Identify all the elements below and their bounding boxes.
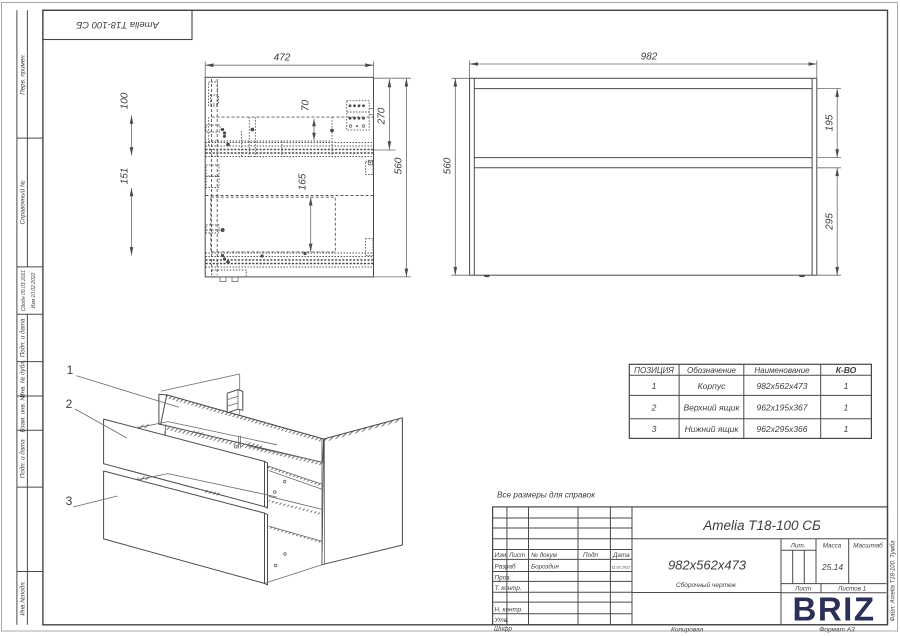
svg-text:Amelia Т18-100 СБ: Amelia Т18-100 СБ <box>702 518 821 533</box>
svg-text:25.14: 25.14 <box>821 562 844 572</box>
svg-text:Корпус: Корпус <box>698 381 726 391</box>
svg-text:Нижний ящик: Нижний ящик <box>685 424 740 434</box>
svg-text:Инв. № дубл.: Инв. № дубл. <box>20 360 27 398</box>
svg-text:Н. контр.: Н. контр. <box>495 607 523 614</box>
svg-text:962х195х367: 962х195х367 <box>756 403 807 413</box>
svg-text:Справочный №: Справочный № <box>20 180 27 224</box>
svg-text:BRIZ: BRIZ <box>793 591 876 628</box>
svg-text:1: 1 <box>652 381 657 391</box>
svg-text:100: 100 <box>120 92 131 109</box>
svg-text:560: 560 <box>394 157 405 174</box>
svg-text:Шифр: Шифр <box>494 626 513 633</box>
svg-text:Лист: Лист <box>508 552 525 559</box>
svg-text:195: 195 <box>825 114 836 131</box>
svg-text:151: 151 <box>120 168 131 185</box>
svg-text:Файл: Amelia Т18-100. Тумба: Файл: Amelia Т18-100. Тумба <box>890 540 897 622</box>
svg-text:Лит.: Лит. <box>790 543 806 550</box>
svg-text:1: 1 <box>844 424 849 434</box>
svg-text:270: 270 <box>377 107 388 125</box>
svg-text:982: 982 <box>641 51 658 62</box>
svg-text:Подп. и дата: Подп. и дата <box>20 318 27 357</box>
svg-text:11.02.2022: 11.02.2022 <box>612 566 632 570</box>
svg-text:Наименование: Наименование <box>754 366 810 375</box>
svg-text:№ докум: № докум <box>531 551 558 559</box>
svg-text:Все размеры для справок: Все размеры для справок <box>497 491 596 500</box>
svg-text:ПОЗИЦИЯ: ПОЗИЦИЯ <box>634 366 674 375</box>
svg-text:2: 2 <box>651 403 657 413</box>
svg-text:982х562х473: 982х562х473 <box>756 381 807 391</box>
svg-text:Подп: Подп <box>583 551 599 559</box>
svg-text:1: 1 <box>67 363 74 377</box>
svg-text:Обозначение: Обозначение <box>687 366 737 375</box>
svg-text:295: 295 <box>825 213 836 231</box>
svg-text:К-ВО: К-ВО <box>836 365 857 375</box>
svg-text:Верхний ящик: Верхний ящик <box>683 403 740 413</box>
svg-text:Изм 10.02.2022: Изм 10.02.2022 <box>31 272 37 308</box>
svg-text:Масштаб: Масштаб <box>853 542 883 550</box>
svg-text:1: 1 <box>844 403 849 413</box>
svg-text:Сдобн 05.03.2021: Сдобн 05.03.2021 <box>21 270 27 311</box>
svg-text:560: 560 <box>443 157 454 174</box>
svg-text:Подп. и дата: Подп. и дата <box>20 439 27 478</box>
svg-text:982х562х473: 982х562х473 <box>668 558 747 573</box>
svg-text:Масса: Масса <box>823 543 842 550</box>
svg-text:3: 3 <box>66 494 73 508</box>
svg-text:Amelia Т18-100 СБ: Amelia Т18-100 СБ <box>76 19 160 30</box>
svg-text:Взам. инв. №: Взам. инв. № <box>20 394 27 433</box>
svg-text:Бороздин: Бороздин <box>531 563 559 571</box>
svg-text:Инв.№подл.: Инв.№подл. <box>20 581 27 616</box>
svg-text:2: 2 <box>66 397 73 411</box>
svg-text:Формат А3: Формат А3 <box>819 627 855 634</box>
svg-text:Утв.: Утв. <box>494 617 509 624</box>
svg-text:Т. контр.: Т. контр. <box>495 585 522 592</box>
svg-text:Дата: Дата <box>612 552 630 559</box>
svg-text:472: 472 <box>274 53 291 64</box>
svg-text:1: 1 <box>844 381 849 391</box>
svg-text:165: 165 <box>298 173 309 190</box>
svg-text:Перв. примен.: Перв. примен. <box>20 54 27 95</box>
svg-text:Разраб: Разраб <box>495 563 516 571</box>
svg-text:3: 3 <box>652 424 657 434</box>
svg-text:Сборочный чертеж: Сборочный чертеж <box>676 581 737 589</box>
svg-text:Пров.: Пров. <box>495 575 512 582</box>
svg-text:Копировал: Копировал <box>671 627 704 634</box>
svg-text:Изм: Изм <box>495 552 507 559</box>
svg-text:962х295х366: 962х295х366 <box>756 424 807 434</box>
svg-text:70: 70 <box>301 100 312 112</box>
